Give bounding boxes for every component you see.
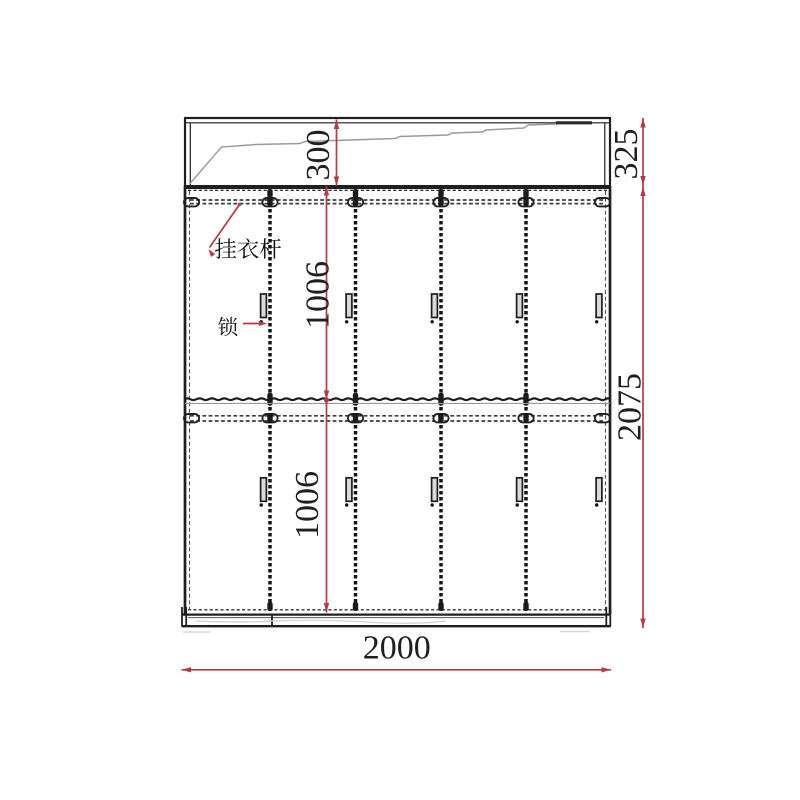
svg-text:2000: 2000 [363,630,431,667]
svg-text:2075: 2075 [611,373,648,441]
svg-text:1006: 1006 [299,261,336,329]
svg-text:1006: 1006 [289,471,326,539]
svg-text:300: 300 [300,130,337,181]
svg-text:325: 325 [608,129,645,180]
